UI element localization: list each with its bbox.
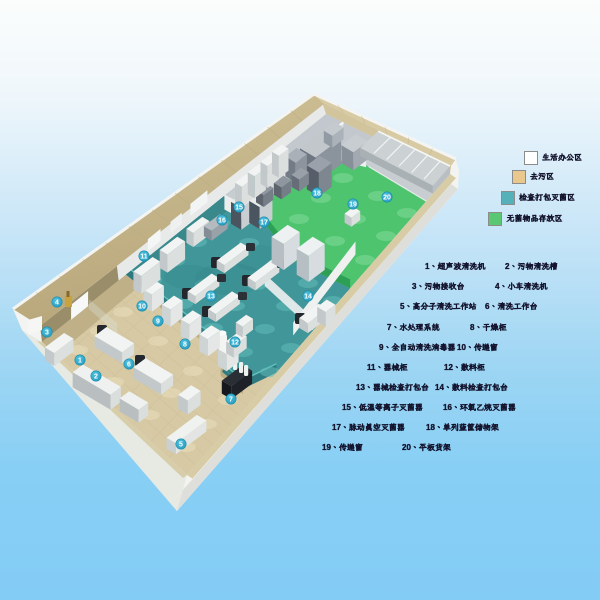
svg-text:12: 12	[231, 340, 239, 347]
svg-text:10: 10	[138, 304, 146, 311]
svg-text:2: 2	[94, 374, 98, 381]
svg-text:5: 5	[179, 442, 183, 449]
svg-text:19: 19	[349, 202, 357, 209]
svg-text:4: 4	[55, 300, 59, 307]
svg-text:11: 11	[140, 254, 148, 261]
svg-text:16: 16	[218, 218, 226, 225]
svg-text:20: 20	[383, 195, 391, 202]
svg-text:6: 6	[127, 362, 131, 369]
svg-text:18: 18	[313, 191, 321, 198]
svg-text:13: 13	[207, 294, 215, 301]
svg-text:3: 3	[45, 330, 49, 337]
svg-text:9: 9	[156, 319, 160, 326]
svg-text:8: 8	[183, 342, 187, 349]
svg-text:7: 7	[229, 397, 233, 404]
svg-text:14: 14	[304, 294, 312, 301]
svg-text:1: 1	[78, 358, 82, 365]
svg-text:17: 17	[260, 220, 268, 227]
svg-text:15: 15	[235, 205, 243, 212]
